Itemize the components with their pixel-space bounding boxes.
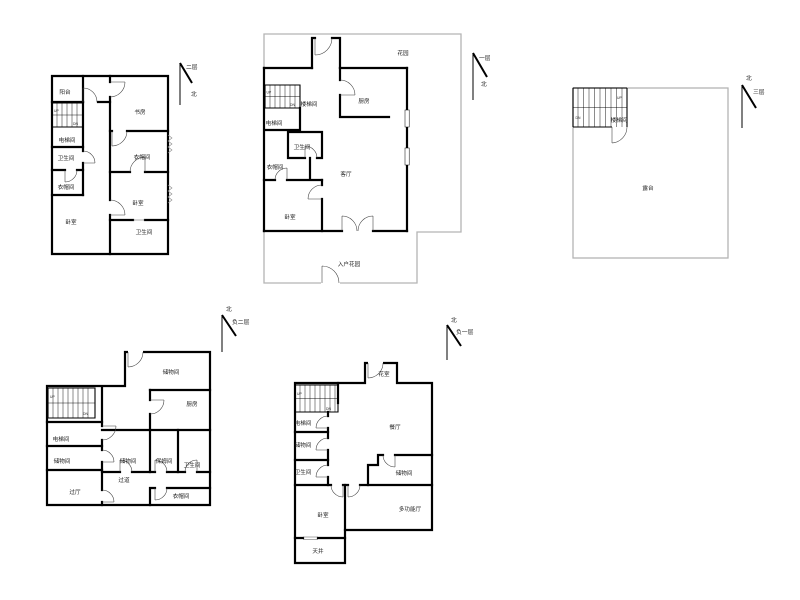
door-arcs [275,38,373,283]
room-label-elevator: 电梯间 [266,119,283,127]
room-label-elevator: 电梯间 [295,419,312,427]
screenshot-canvas: { "canvas": { "background": "#ffffff", "… [0,0,800,600]
stair-dn-label: DN [83,412,88,416]
floor-label: 二层 [186,64,198,71]
stair-dn-label: DN [576,116,581,120]
room-label-cloakroom: 衣帽间 [267,163,284,171]
room-label-bathroom: 卫生间 [184,461,201,469]
floorplan-second-floor: UP DN 阳台 书房 电梯间 卫生间 衣帽间 卧室 衣帽间 卧室 卫生间 二层… [45,55,210,260]
north-label: 北 [451,316,457,324]
room-label-living-room: 客厅 [340,170,352,178]
floorplan-basement-one: UP DN 花室 餐厅 电梯间 储物间 卫生间 储物间 多功能厅 卧室 天井 北… [283,313,483,568]
stair-up-label: UP [297,392,302,396]
room-label-elevator: 电梯间 [59,136,76,144]
room-label-cloakroom-1: 衣帽间 [58,183,75,191]
stair-up-label: UP [54,109,59,113]
room-label-corridor: 过道 [118,476,130,484]
room-label-garden: 花园 [397,49,409,57]
room-label-bathroom: 卫生间 [295,468,312,476]
stair-up-label: UP [267,91,272,95]
room-labels: 楼梯间 露台 [611,116,654,192]
floor-label: 三层 [753,89,765,96]
room-label-bedroom-1: 卧室 [65,218,77,226]
stair-dn-label: DN [290,103,295,107]
north-label: 北 [191,90,197,98]
room-label-entry-garden: 入户花园 [338,260,361,268]
compass-icon: 一层 北 [473,53,490,100]
floor-label: 负二层 [232,318,250,326]
room-label-cloakroom-2: 衣帽间 [134,153,151,161]
room-label-bathroom-1: 卫生间 [58,154,75,162]
stair-icon: UP DN [52,103,83,127]
room-label-dining-room: 餐厅 [389,423,401,431]
terrace-boundary [573,88,728,258]
room-label-storage-left: 储物间 [54,457,71,465]
stair-icon: UP DN [295,385,338,412]
room-label-storage-right: 储物间 [396,469,413,477]
room-label-elevator: 电梯间 [53,435,70,443]
room-label-nanny-room: 保姆间 [156,457,173,465]
room-label-bathroom: 卫生间 [294,143,311,151]
floor-label: 负一层 [456,328,474,336]
stair-icon: UP DN [48,388,95,418]
room-label-stairwell: 楼梯间 [301,100,318,108]
room-label-study: 书房 [134,108,146,116]
floor-label: 一层 [479,55,490,62]
room-label-bedroom: 卧室 [317,511,329,519]
room-label-hall: 过厅 [69,488,81,496]
stair-up-label: UP [50,395,55,399]
room-label-bedroom: 卧室 [284,213,296,221]
compass-icon: 北 负一层 [447,316,474,360]
stair-dn-label: DN [326,407,331,411]
room-label-lightwell: 天井 [312,547,324,555]
walls [264,38,407,231]
compass-icon: 北 负二层 [222,305,250,352]
door-arc [612,127,627,143]
room-label-bedroom-2: 卧室 [132,199,144,207]
room-label-balcony: 阳台 [59,88,71,96]
room-label-cloakroom: 衣帽间 [173,492,190,500]
room-label-storage-top: 储物间 [163,368,180,376]
room-label-bathroom-2: 卫生间 [136,228,153,236]
garden-boundary [264,34,461,286]
stair-up-label: UP [617,96,622,100]
compass-icon: 北 三层 [742,74,765,128]
floorplan-basement-two: UP DN 储物间 厨房 电梯间 储物间 储物间 保姆间 卫生间 过道 过厅 衣… [40,300,255,515]
room-label-kitchen: 厨房 [186,400,198,408]
floorplan-first-floor: UP DN 花园 厨房 楼梯间 电梯间 卫生间 衣帽间 客厅 卧室 入户花园 一… [255,25,490,290]
room-label-storage-mid: 储物间 [120,457,137,465]
stair-icon: UP DN [265,85,300,108]
compass-icon: 二层 北 [180,63,198,105]
north-label: 北 [481,80,487,88]
room-label-multifunction: 多功能厅 [399,505,422,513]
room-label-stairwell: 楼梯间 [611,116,628,124]
floorplan-third-floor: UP DN 楼梯间 露台 北 三层 [562,66,792,261]
room-label-flower-room: 花室 [378,370,390,378]
room-label-terrace: 露台 [642,184,654,192]
stair-dn-label: DN [73,122,78,126]
room-label-kitchen: 厨房 [358,97,370,105]
north-label: 北 [746,74,752,82]
room-labels: 花室 餐厅 电梯间 储物间 卫生间 储物间 多功能厅 卧室 天井 [295,370,422,555]
walls [295,361,432,564]
north-label: 北 [226,305,232,313]
room-label-storage-left: 储物间 [295,441,312,449]
